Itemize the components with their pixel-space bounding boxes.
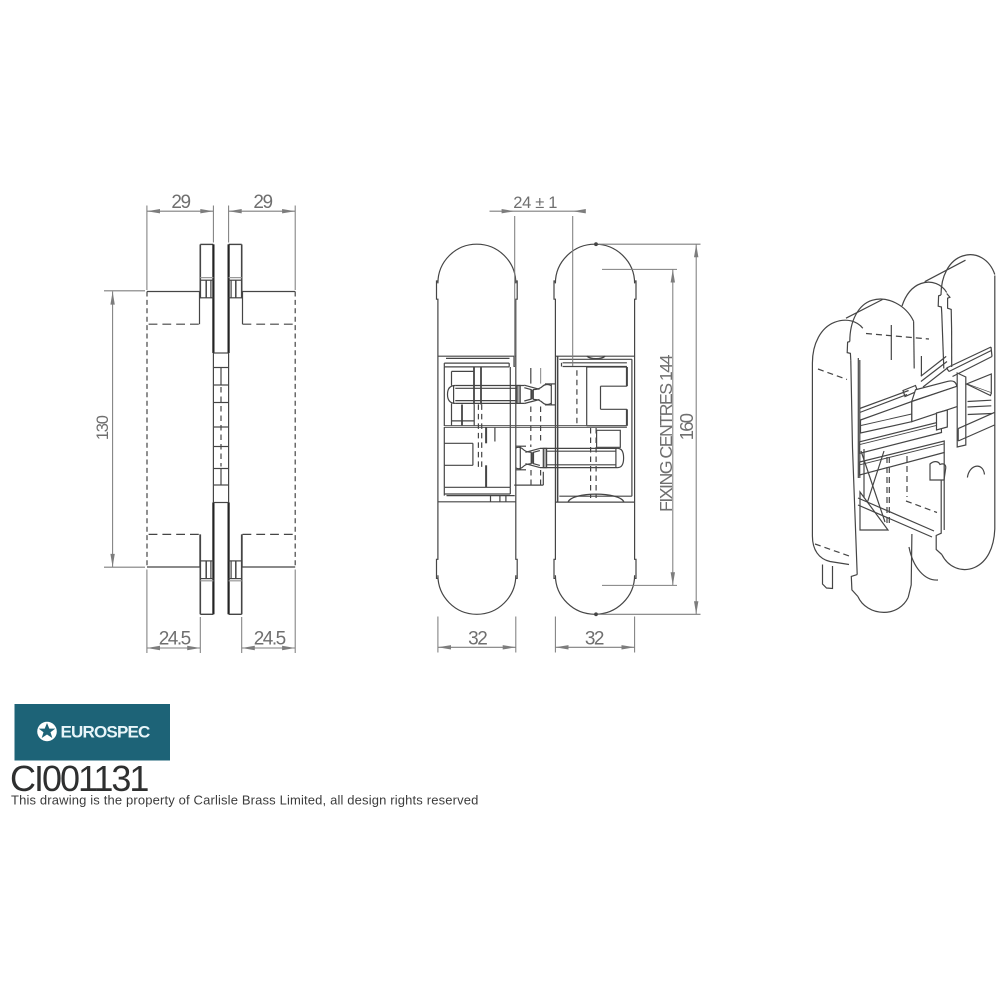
svg-text:160: 160: [676, 413, 697, 440]
svg-text:FIXING CENTRES 144: FIXING CENTRES 144: [656, 354, 676, 512]
svg-text:32: 32: [468, 629, 487, 650]
svg-text:EUROSPEC: EUROSPEC: [61, 723, 151, 742]
svg-text:29: 29: [253, 192, 272, 213]
svg-text:24.5: 24.5: [254, 629, 286, 650]
svg-text:24.5: 24.5: [159, 629, 191, 650]
svg-text:130: 130: [94, 415, 112, 440]
svg-text:This drawing is the property o: This drawing is the property of Carlisle…: [11, 793, 479, 808]
svg-text:24 ± 1: 24 ± 1: [513, 194, 557, 212]
svg-text:32: 32: [585, 629, 604, 650]
svg-text:29: 29: [171, 192, 190, 213]
